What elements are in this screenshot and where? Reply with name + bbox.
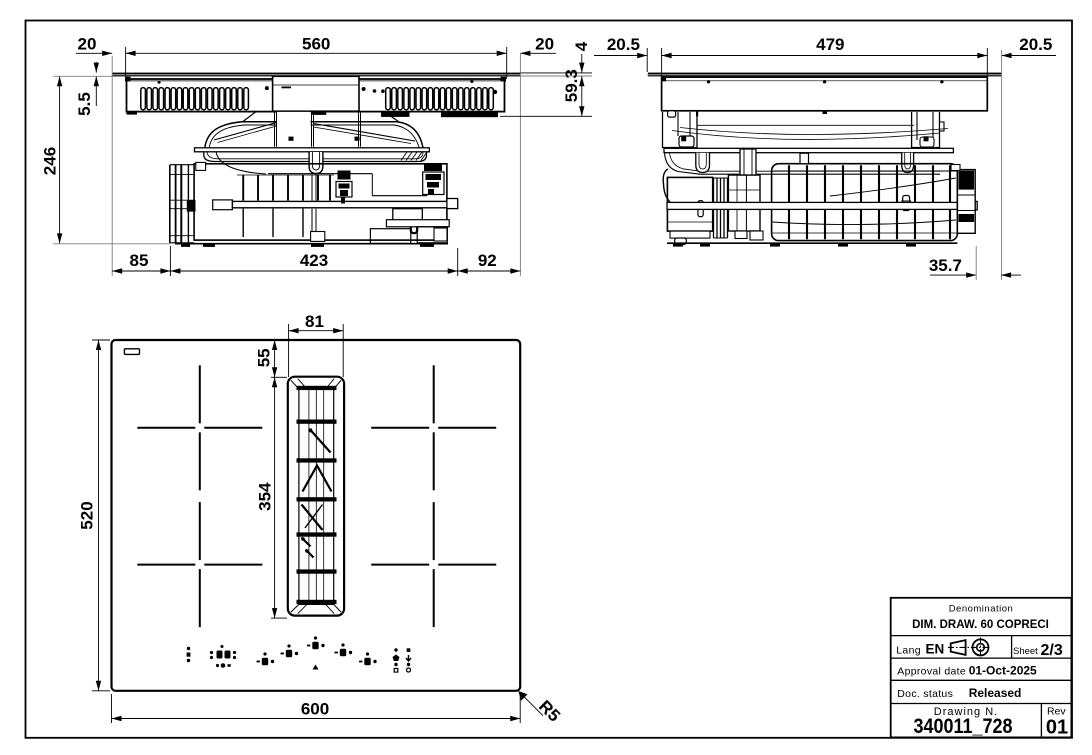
svg-text:EN: EN [926,642,945,657]
svg-text:Denomination: Denomination [949,604,1014,615]
svg-text:423: 423 [300,251,328,270]
svg-text:4: 4 [572,41,591,51]
svg-text:01: 01 [1046,717,1068,739]
svg-text:81: 81 [305,312,324,331]
svg-text:35.7: 35.7 [929,256,962,275]
svg-text:354: 354 [255,482,274,511]
svg-text:Released: Released [969,686,1022,700]
svg-text:520: 520 [77,501,96,529]
svg-text:2/3: 2/3 [1041,642,1063,659]
svg-text:Lang: Lang [896,645,921,657]
svg-text:20.5: 20.5 [607,35,640,54]
svg-text:Approval date: Approval date [897,665,966,677]
svg-text:246: 246 [41,147,60,175]
svg-text:20: 20 [535,35,554,54]
svg-text:340011_728: 340011_728 [914,715,1013,738]
svg-text:55: 55 [254,348,273,367]
svg-text:Sheet: Sheet [1013,646,1038,657]
svg-text:85: 85 [130,251,149,270]
svg-text:20: 20 [78,35,97,54]
svg-text:59.3: 59.3 [562,69,581,102]
svg-text:560: 560 [302,35,330,54]
svg-text:Doc. status: Doc. status [897,688,953,700]
svg-text:DIM. DRAW. 60 COPRECI: DIM. DRAW. 60 COPRECI [912,619,1049,631]
svg-text:600: 600 [301,700,329,719]
svg-text:01-Oct-2025: 01-Oct-2025 [969,663,1037,677]
svg-text:92: 92 [478,251,497,270]
svg-text:20.5: 20.5 [1019,35,1052,54]
svg-text:5.5: 5.5 [75,92,94,116]
svg-text:479: 479 [816,35,844,54]
